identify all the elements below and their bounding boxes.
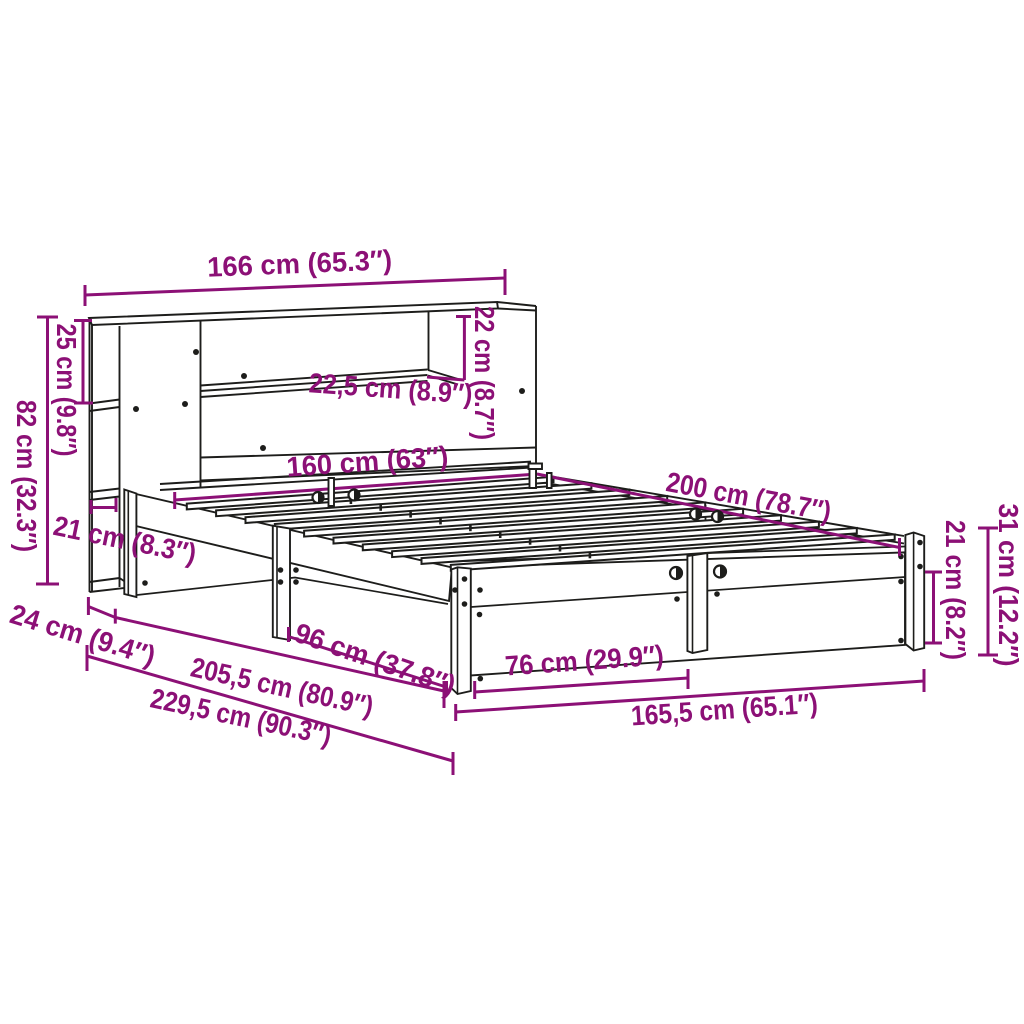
svg-text:82 cm (32.3″): 82 cm (32.3″) [11,400,42,552]
svg-text:25 cm (9.8″): 25 cm (9.8″) [51,324,82,457]
svg-text:22 cm (8.7″): 22 cm (8.7″) [469,306,500,440]
svg-text:31 cm (12.2″): 31 cm (12.2″) [993,504,1024,667]
svg-text:21 cm (8.2″): 21 cm (8.2″) [940,520,971,660]
